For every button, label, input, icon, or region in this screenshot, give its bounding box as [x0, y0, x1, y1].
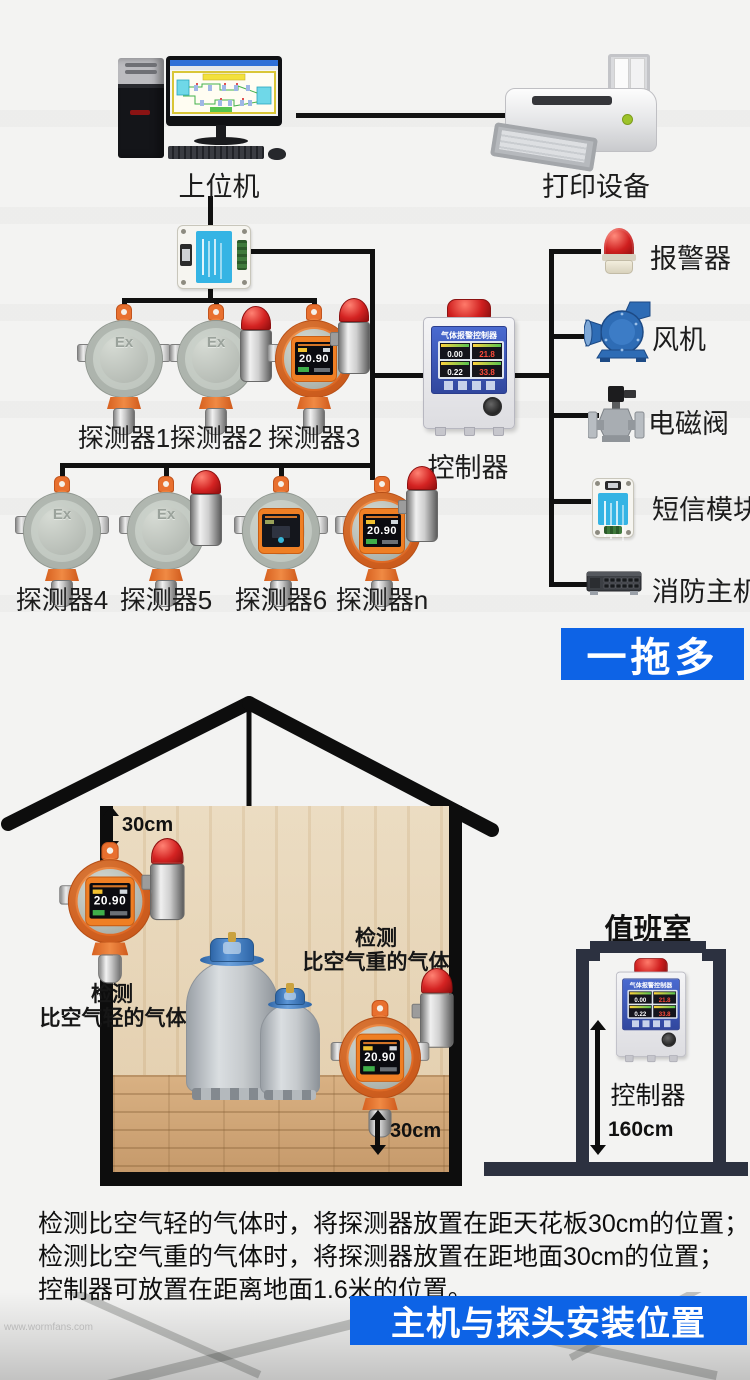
detector-reading: 20.90	[363, 525, 401, 537]
light-gas-line2: 比空气轻的气体	[38, 1002, 188, 1032]
reading-3: 0.22	[447, 368, 463, 377]
reading-2: 21.8	[479, 350, 495, 359]
printer-slot	[532, 96, 612, 105]
wire-stub-alarm	[553, 249, 601, 254]
ex-marking: Ex	[12, 506, 112, 523]
module-terminal	[237, 240, 247, 270]
banner-install-position: 主机与探头安装位置	[350, 1296, 747, 1345]
keyboard	[168, 146, 264, 159]
duty-controller: 气体报警控制器 0.00 21.8 0.22 33.8	[616, 958, 686, 1060]
controller-screen-title: 气体报警控制器	[432, 330, 506, 341]
pc-tower	[118, 58, 164, 158]
alarm-sounder-icon	[338, 298, 370, 376]
controller-screen: 0.00 21.8 0.22 33.8	[438, 341, 504, 379]
controller-beacon-icon	[447, 299, 491, 319]
footer-note-1: 检测比空气轻的气体时，将探测器放置在距天花板30cm的位置；	[38, 1204, 749, 1240]
monitor-base	[194, 137, 248, 145]
duty-room-right-wall	[713, 959, 726, 1162]
sms-module-icon	[592, 478, 634, 538]
reading-1: 0.00	[447, 350, 463, 359]
duty-room-floor	[484, 1162, 748, 1176]
watermark: www.wormfans.com	[4, 1322, 93, 1333]
ceiling-distance-arrow	[108, 814, 113, 842]
detector-5-label: 探测器5	[106, 580, 226, 617]
controller-height-arrow	[595, 1028, 600, 1146]
duty-room-left-wall	[576, 959, 589, 1162]
detector-3-label: 探测器3	[254, 418, 374, 455]
detector-n-label: 探测器n	[322, 580, 442, 617]
fire-host-label: 消防主机	[652, 570, 750, 609]
alarm-sounder-icon	[190, 470, 222, 548]
wire-controller-right	[511, 373, 553, 378]
controller-knob	[483, 397, 502, 416]
detector-reading: 20.90	[295, 353, 333, 365]
printer-power-light	[622, 114, 633, 125]
controller-face: 气体报警控制器 0.00 21.8 0.22 33.8	[431, 326, 507, 394]
sms-label: 短信模块	[652, 488, 750, 527]
footer-note-2: 检测比空气重的气体时，将探测器放置在距地面30cm的位置；	[38, 1237, 724, 1273]
alarm-sounder-icon	[150, 838, 185, 922]
detector-1: Ex	[74, 304, 174, 436]
duty-controller-label: 控制器	[600, 1076, 696, 1112]
gas-cylinder-small	[260, 988, 320, 1102]
mouse	[268, 148, 286, 160]
usb-rs485-module-icon	[177, 225, 251, 289]
banner-one-to-many: 一拖多	[561, 628, 744, 680]
fan-icon	[584, 298, 654, 364]
fan-label: 风机	[652, 318, 706, 357]
controller-buttons	[444, 381, 496, 390]
wire-branch2	[60, 463, 375, 468]
wire-stub-sms	[553, 499, 591, 504]
scada-screen	[170, 60, 278, 116]
alarm-sounder-icon	[406, 466, 438, 544]
reading-4: 33.8	[479, 368, 495, 377]
floor-distance-arrow	[375, 1118, 380, 1146]
solenoid-valve-icon	[588, 384, 646, 448]
alarm-beacon-icon	[600, 228, 638, 276]
detector-reading: 20.90	[360, 1051, 400, 1064]
detector-4-label: 探测器4	[2, 580, 122, 617]
detector-reading: 20.90	[89, 895, 130, 908]
ceiling-gap-label: 30cm	[122, 814, 173, 837]
fire-host-icon	[586, 566, 646, 598]
gas-detection-infographic: 上位机 打印设备 Ex Ex 20	[0, 0, 750, 1380]
wire-branch1	[122, 298, 316, 303]
alarm-label: 报警器	[650, 237, 731, 276]
valve-label: 电磁阀	[648, 402, 729, 441]
house-detector-light-gas: 20.90	[56, 842, 164, 985]
floor-gap-label: 30cm	[390, 1120, 441, 1143]
duty-room-top	[590, 941, 706, 953]
wire-module-right	[246, 249, 372, 254]
controller: 气体报警控制器 0.00 21.8 0.22 33.8	[423, 299, 515, 433]
module-usb-port	[180, 244, 192, 266]
controller-height-label: 160cm	[608, 1118, 673, 1142]
pc-monitor	[166, 56, 282, 126]
printer-icon	[500, 52, 660, 164]
ex-marking: Ex	[74, 334, 174, 351]
wire-peripheral-bus	[549, 249, 554, 587]
wire-to-controller-left	[370, 373, 424, 378]
printer-label: 打印设备	[536, 165, 656, 204]
wire-host-printer	[296, 113, 505, 118]
module-panel	[196, 231, 232, 283]
host-label: 上位机	[159, 165, 279, 204]
